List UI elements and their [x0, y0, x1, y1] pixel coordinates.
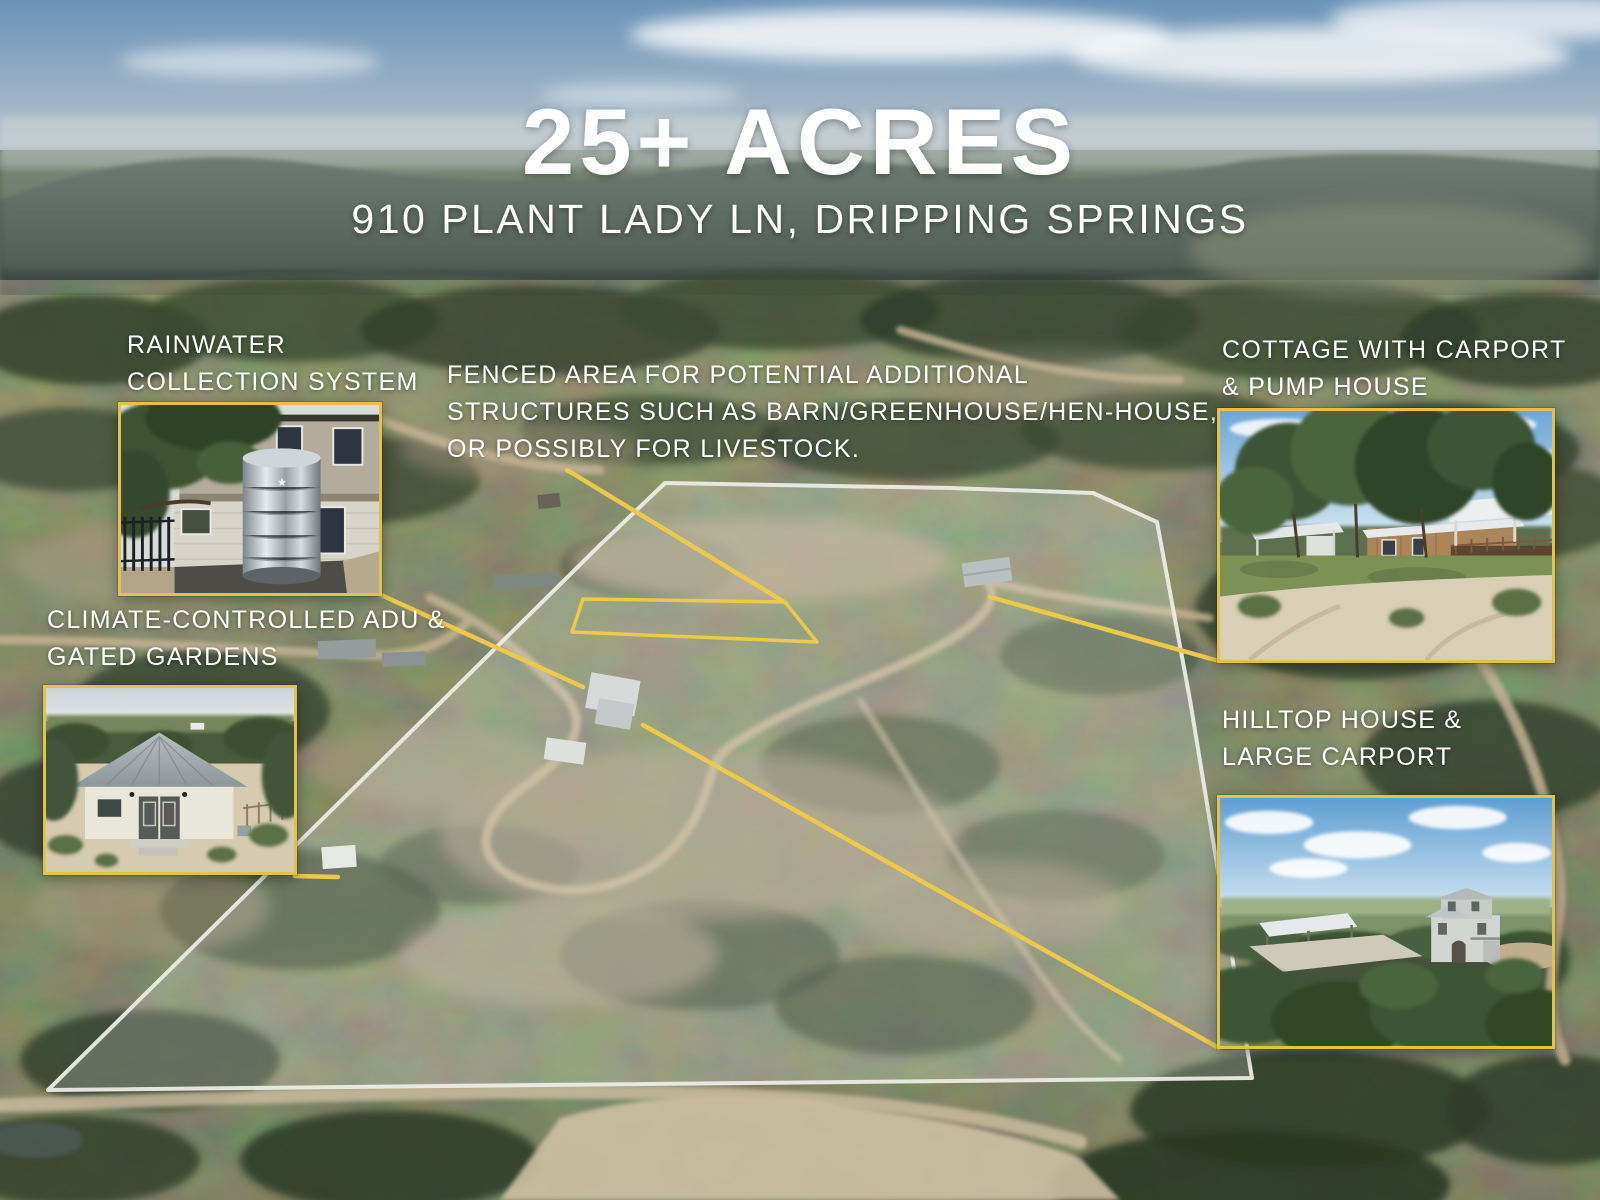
cottage-photo: [1217, 408, 1555, 663]
hilltop-house: [1426, 888, 1500, 962]
water-tank: ★: [243, 448, 321, 584]
adu-photo: [43, 685, 297, 875]
listing-graphic: 25+ ACRES 910 PLANT LADY LN, DRIPPING SP…: [0, 0, 1600, 1200]
svg-text:★: ★: [277, 476, 287, 489]
page-subtitle: 910 PLANT LADY LN, DRIPPING SPRINGS: [0, 196, 1600, 243]
page-title: 25+ ACRES: [0, 88, 1600, 196]
rainwater-photo: ★: [118, 402, 382, 596]
leader-adu: [295, 876, 338, 877]
callout-adu: CLIMATE-CONTROLLED ADU & GATED GARDENS: [47, 602, 446, 676]
callout-hilltop: HILLTOP HOUSE & LARGE CARPORT: [1222, 702, 1462, 776]
hilltop-photo: [1217, 795, 1555, 1049]
callout-rainwater: RAINWATER COLLECTION SYSTEM: [127, 327, 419, 401]
callout-cottage: COTTAGE WITH CARPORT & PUMP HOUSE: [1222, 332, 1567, 406]
callout-fenced-area: FENCED AREA FOR POTENTIAL ADDITIONAL STR…: [447, 357, 1218, 468]
